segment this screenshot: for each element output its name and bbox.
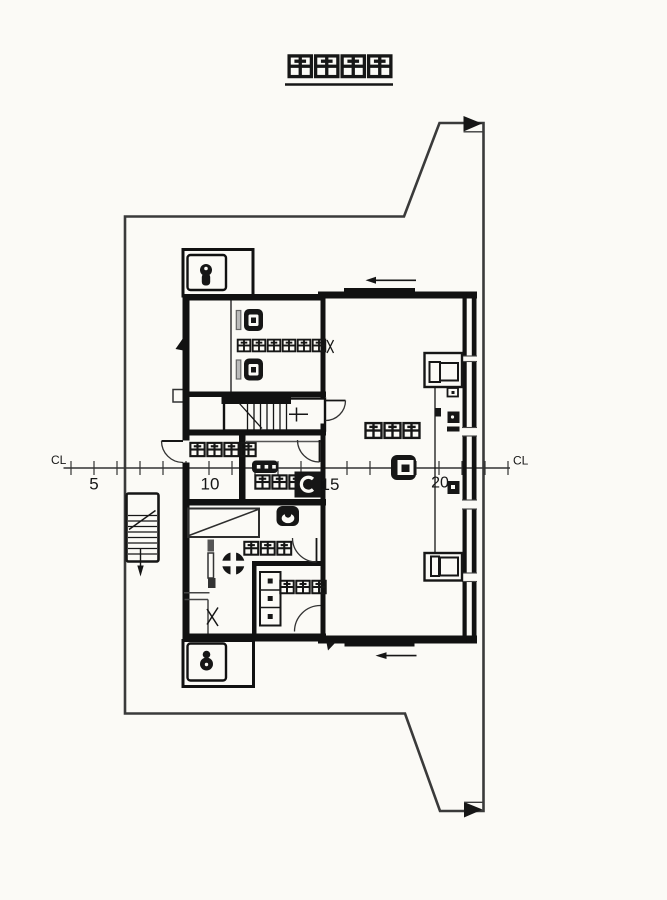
svg-text:5: 5 xyxy=(89,475,98,494)
svg-text:15: 15 xyxy=(321,475,340,494)
svg-text:10: 10 xyxy=(201,475,220,494)
svg-text:CL: CL xyxy=(513,454,529,468)
svg-text:CL: CL xyxy=(51,453,67,467)
svg-text:20: 20 xyxy=(431,475,449,492)
